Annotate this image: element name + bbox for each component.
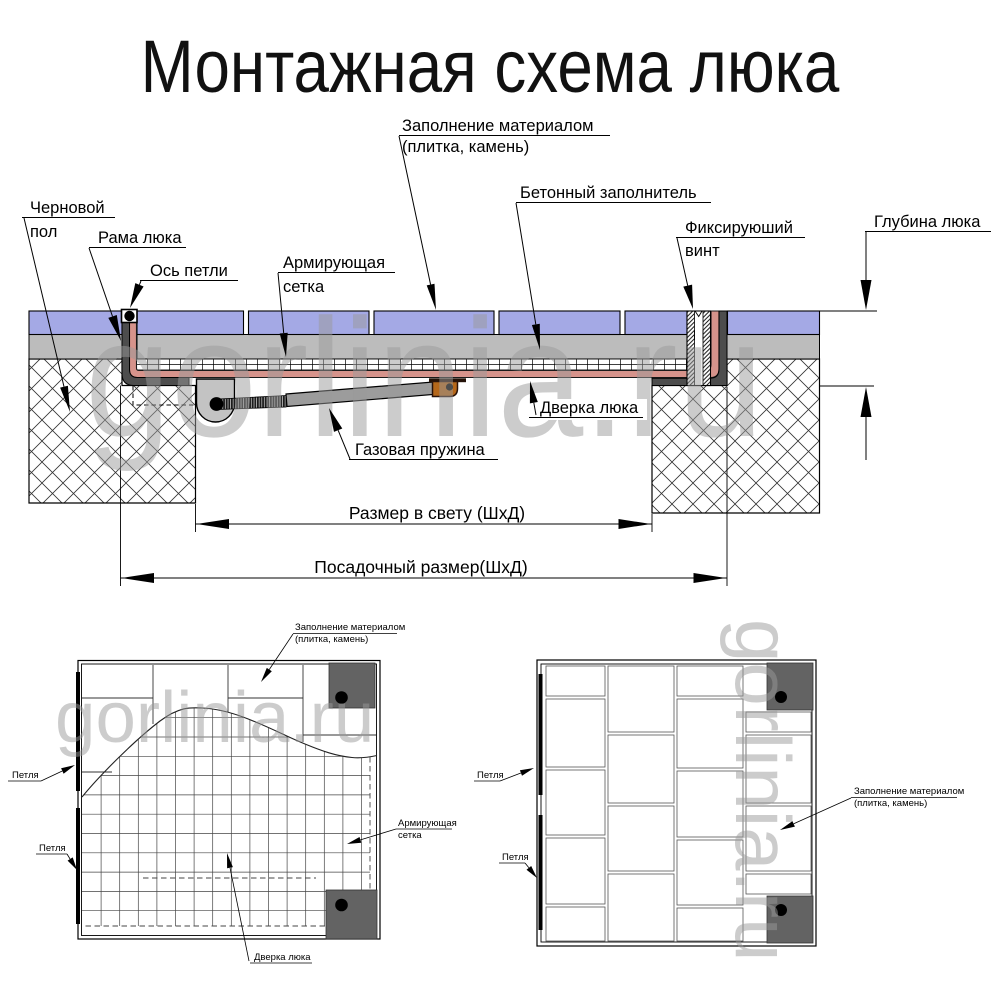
svg-text:(плитка, камень): (плитка, камень)	[402, 138, 529, 156]
svg-text:Армирующая: Армирующая	[398, 818, 457, 829]
svg-text:Фиксируюший: Фиксируюший	[685, 219, 793, 237]
svg-text:винт: винт	[685, 242, 720, 260]
svg-text:Рама люка: Рама люка	[98, 229, 182, 247]
svg-text:Петля: Петля	[477, 770, 504, 781]
svg-text:gorlinia.ru: gorlinia.ru	[55, 677, 374, 758]
svg-text:пол: пол	[30, 223, 57, 241]
svg-text:Монтажная схема люка: Монтажная схема люка	[141, 24, 840, 108]
svg-text:Дверка люка: Дверка люка	[540, 399, 639, 417]
svg-text:Армирующая: Армирующая	[283, 254, 385, 272]
svg-text:Черновой: Черновой	[30, 199, 105, 217]
svg-text:gorlinia.ru: gorlinia.ru	[719, 619, 807, 962]
svg-text:Размер в свету (ШхД): Размер в свету (ШхД)	[349, 503, 525, 523]
svg-text:(плитка, камень): (плитка, камень)	[295, 634, 368, 645]
svg-text:Заполнение материалом: Заполнение материалом	[402, 117, 594, 135]
svg-text:Бетонный заполнитель: Бетонный заполнитель	[520, 184, 697, 202]
svg-text:сетка: сетка	[283, 278, 325, 296]
svg-text:Газовая пружина: Газовая пружина	[355, 441, 486, 459]
svg-text:сетка: сетка	[398, 830, 422, 841]
svg-text:Ось петли: Ось петли	[150, 262, 228, 280]
svg-text:Петля: Петля	[502, 852, 529, 863]
svg-text:Петля: Петля	[39, 843, 66, 854]
svg-text:Заполнение материалом: Заполнение материалом	[295, 622, 405, 633]
svg-text:Посадочный размер(ШхД): Посадочный размер(ШхД)	[314, 557, 527, 577]
svg-text:Дверка люка: Дверка люка	[254, 952, 311, 963]
svg-text:Глубина люка: Глубина люка	[874, 213, 981, 231]
svg-text:(плитка, камень): (плитка, камень)	[854, 798, 927, 809]
svg-text:Петля: Петля	[12, 770, 39, 781]
svg-text:Заполнение материалом: Заполнение материалом	[854, 786, 964, 797]
